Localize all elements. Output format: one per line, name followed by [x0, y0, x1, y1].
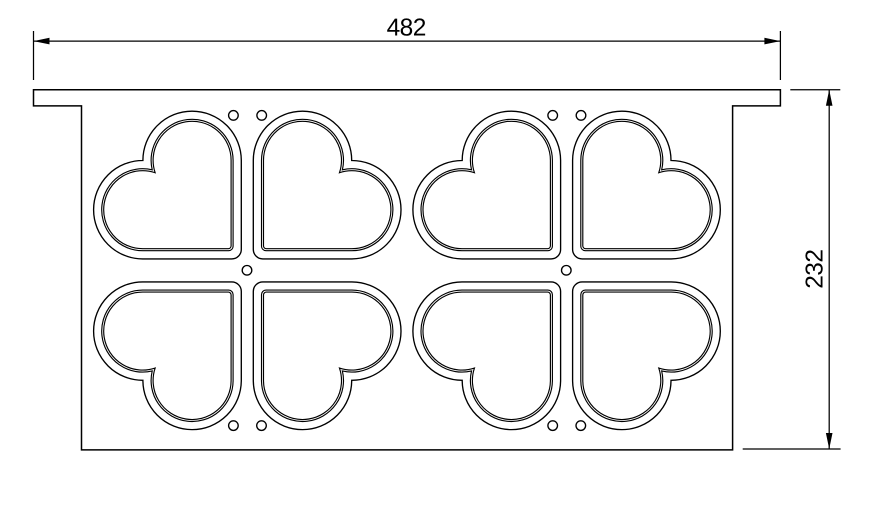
svg-text:232: 232 — [801, 250, 828, 289]
svg-text:482: 482 — [387, 14, 426, 41]
